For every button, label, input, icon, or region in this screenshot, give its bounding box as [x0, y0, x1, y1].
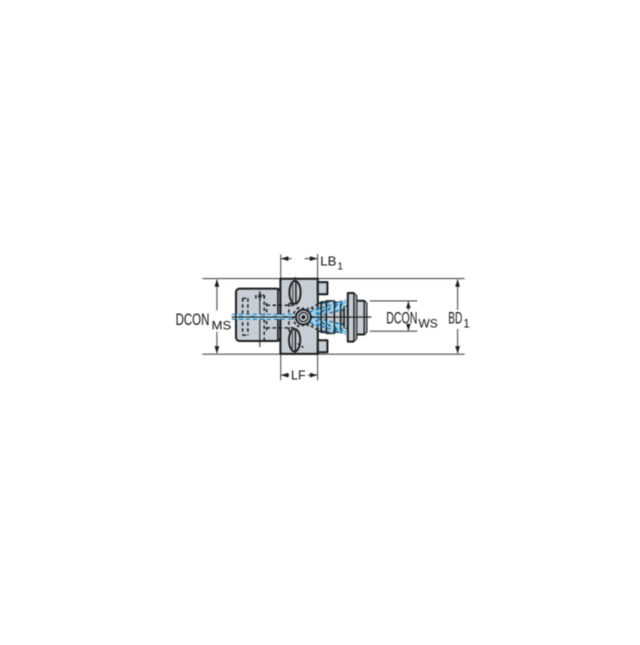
svg-text:MS: MS — [212, 319, 232, 332]
svg-text:DCON: DCON — [386, 308, 417, 327]
svg-text:LB: LB — [320, 253, 336, 268]
svg-text:WS: WS — [418, 318, 438, 331]
svg-text:1: 1 — [337, 261, 343, 273]
svg-text:1: 1 — [463, 318, 469, 331]
svg-text:DCON: DCON — [176, 310, 210, 329]
svg-text:BD: BD — [448, 309, 462, 328]
svg-text:LF: LF — [291, 368, 306, 383]
